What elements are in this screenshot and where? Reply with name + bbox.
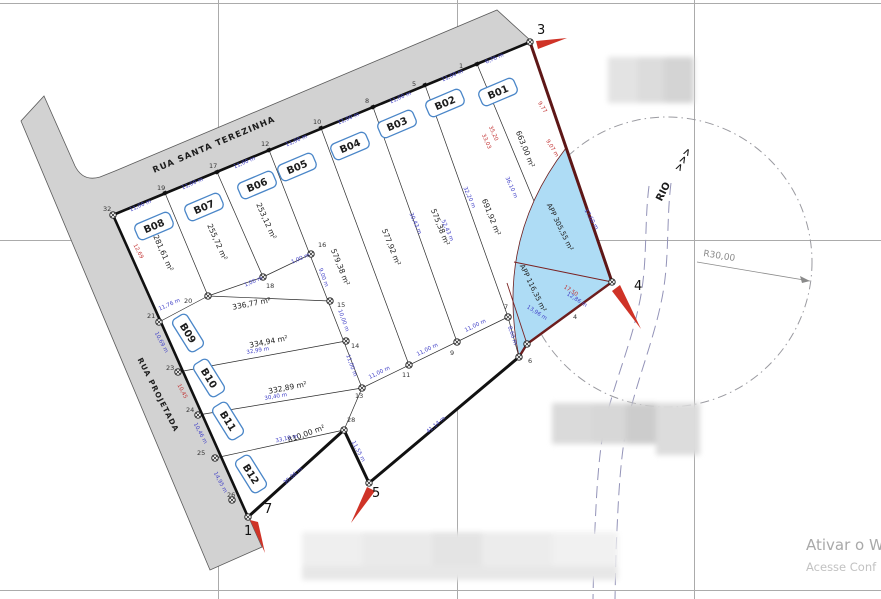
vertex-marker-icon	[527, 39, 533, 45]
vertex-marker-icon	[195, 412, 201, 418]
activate-windows-text: Ativar o W	[806, 536, 881, 554]
vertex-number-small: 12	[261, 140, 269, 148]
vertex-marker-icon	[406, 362, 412, 368]
vertex-number-small: 11	[402, 371, 410, 379]
vertex-number-small: 1	[459, 62, 463, 70]
radius-label: R30,00	[703, 249, 736, 264]
arrow-vertex-3	[536, 38, 567, 49]
vertex-marker-icon	[516, 354, 522, 360]
vertex-marker-icon	[454, 339, 460, 345]
activate-windows-subtext: Acesse Conf	[806, 560, 876, 574]
vertex-number-small: 28	[347, 416, 355, 424]
site-plan-canvas: RUA SANTA TEREZINHA RUA PROJETADA RIO >>…	[0, 0, 881, 599]
vertex-marker-icon	[212, 455, 218, 461]
vertex-marker-icon	[359, 385, 365, 391]
vertex-number-small: 21	[147, 312, 155, 320]
radius-annotation: R30,00	[697, 249, 810, 283]
vertex-number-small: 24	[186, 406, 194, 414]
river-flow-arrows-icon: >>>	[673, 146, 694, 173]
vertex-number-small: 8	[365, 97, 369, 105]
vertex-number-small: 15	[337, 301, 345, 309]
vertex-number-large: 7	[264, 502, 272, 517]
vertex-number-small: 26	[227, 491, 235, 499]
vertex-number-small: 20	[184, 297, 192, 305]
vertex-marker-icon	[205, 293, 211, 299]
vertex-number-small: 6	[528, 357, 532, 365]
blurred-block-bottom	[302, 532, 618, 580]
vertex-number-small: 13	[355, 392, 363, 400]
vertex-marker-icon	[341, 427, 347, 433]
vertex-marker-icon	[524, 341, 530, 347]
vertex-number-small: 32	[103, 205, 111, 213]
blurred-block-top-right	[608, 57, 694, 103]
vertex-number-small: 25	[197, 449, 205, 457]
vertex-number-large: 1	[244, 524, 252, 539]
blurred-block-mid-right	[552, 403, 700, 455]
vertex-number-large: 5	[372, 486, 380, 501]
vertex-number-small: 17	[209, 162, 217, 170]
vertex-number-small: 5	[412, 80, 416, 88]
vertex-number-small: 4	[573, 313, 577, 321]
vertex-marker-icon	[245, 514, 251, 520]
vertex-marker-icon	[609, 279, 615, 285]
vertex-number-small: 7	[504, 303, 508, 311]
vertex-number-small: 19	[157, 184, 165, 192]
vertex-marker-icon	[327, 298, 333, 304]
vertex-number-small: 18	[266, 282, 274, 290]
vertex-number-large: 4	[634, 279, 642, 294]
vertex-number-small: 14	[351, 342, 359, 350]
vertex-number-small: 9	[450, 349, 454, 357]
vertex-marker-icon	[343, 338, 349, 344]
vertex-number-small: 10	[313, 118, 321, 126]
vertex-number-large: 3	[537, 23, 545, 38]
vertex-number-small: 16	[318, 241, 326, 249]
site-plan-drawing: RUA SANTA TEREZINHA RUA PROJETADA RIO >>…	[0, 0, 881, 599]
vertex-number-small: 23	[166, 364, 174, 372]
vertex-marker-icon	[156, 319, 162, 325]
vertex-marker-icon	[175, 369, 181, 375]
vertex-marker-icon	[505, 314, 511, 320]
